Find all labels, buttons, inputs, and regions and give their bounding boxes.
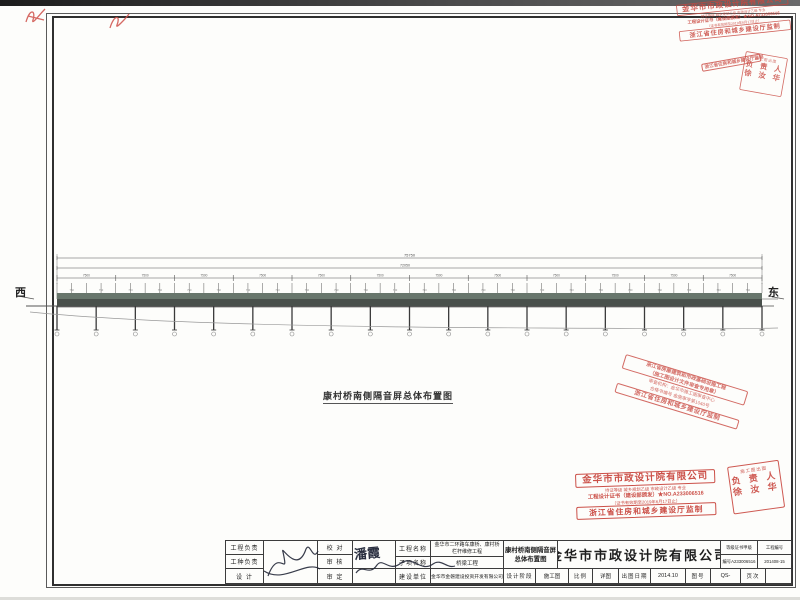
scale-label: 比例 <box>569 569 593 584</box>
drawing-title-line1: 康村桥南侧隔音屏 <box>505 547 556 554</box>
drawing-title-cell: 康村桥南侧隔音屏 总体布置图 <box>504 541 558 569</box>
title-block: 工程负责 工种负责 设 计 校 对 审 核 审 定 工程名称 金华市二环路车康桥… <box>225 540 792 585</box>
svg-text:750: 750 <box>687 288 692 292</box>
role-label-trade-lead: 工种负责 <box>226 555 264 569</box>
reviewer-signature: 潘霞 <box>353 542 381 563</box>
role-label-checker: 校 对 <box>318 541 353 555</box>
svg-text:7500: 7500 <box>670 274 677 278</box>
subitem-label: 子项名称 <box>396 557 431 569</box>
svg-text:75750: 75750 <box>404 253 416 258</box>
figno-label: 图号 <box>686 569 711 584</box>
owner-label: 建设单位 <box>396 569 431 584</box>
role-label-project-lead: 工程负责 <box>226 541 264 555</box>
svg-text:750: 750 <box>628 288 633 292</box>
east-label: 东 <box>768 284 779 300</box>
svg-text:750: 750 <box>393 288 398 292</box>
svg-text:7500: 7500 <box>612 274 619 278</box>
owner-value: 金华市金磐建设投资开发有限公司 <box>431 569 504 584</box>
svg-text:750: 750 <box>658 288 663 292</box>
svg-text:750: 750 <box>187 288 192 292</box>
svg-text:7500: 7500 <box>259 274 266 278</box>
svg-text:750: 750 <box>128 288 133 292</box>
stage-label: 设计阶段 <box>504 569 536 584</box>
svg-text:750: 750 <box>746 288 751 292</box>
svg-text:750: 750 <box>422 288 427 292</box>
svg-text:750: 750 <box>716 288 721 292</box>
certificate-stamp: 金华市市政设计院有限公司 持证等级 城乡规划乙级 市政设计乙级 专业 工程设计证… <box>575 469 717 520</box>
red-scribble-1 <box>26 9 45 22</box>
responsible-person-stamp-top: 施工图出图 负 责 人 徐 汝 华 <box>739 51 788 97</box>
signature-cell-approver <box>353 569 396 584</box>
svg-text:750: 750 <box>599 288 604 292</box>
subitem-value: 桥梁工程 <box>431 557 504 569</box>
role-label-designer: 设 计 <box>226 569 264 584</box>
svg-text:750: 750 <box>246 288 251 292</box>
west-label: 西 <box>15 284 26 300</box>
signature-cell-left <box>264 541 318 584</box>
project-name-value: 金华市二环路车康桥、康村桥 栏杆维修工程 <box>431 541 504 557</box>
svg-text:72050: 72050 <box>400 264 410 268</box>
figno-value: QS- <box>711 569 741 584</box>
scale-value: 详图 <box>593 569 619 584</box>
project-no-value: 201408-15 <box>758 555 791 569</box>
svg-text:750: 750 <box>275 288 280 292</box>
drawing-caption: 康村桥南侧隔音屏总体布置图 <box>238 386 538 404</box>
project-name-line2: 栏杆维修工程 <box>452 549 482 555</box>
svg-text:7500: 7500 <box>553 274 560 278</box>
date-label: 出图日期 <box>619 569 651 584</box>
project-name-label: 工程名称 <box>396 541 431 557</box>
svg-text:7500: 7500 <box>435 274 442 278</box>
svg-text:750: 750 <box>217 288 222 292</box>
svg-text:750: 750 <box>305 288 310 292</box>
svg-text:750: 750 <box>452 288 457 292</box>
red-scribble-1b <box>28 16 44 20</box>
role-label-reviewer: 审 核 <box>318 555 353 569</box>
page-label: 页次 <box>741 569 766 584</box>
stage-value: 施工图 <box>536 569 569 584</box>
svg-text:7500: 7500 <box>142 274 149 278</box>
svg-text:750: 750 <box>364 288 369 292</box>
svg-text:7500: 7500 <box>318 274 325 278</box>
svg-text:750: 750 <box>481 288 486 292</box>
svg-text:750: 750 <box>99 288 104 292</box>
drawing-caption-text: 康村桥南侧隔音屏总体布置图 <box>323 389 453 404</box>
responsible-person-stamp: 施工图出图 负 责 人 徐 汝 华 <box>727 460 785 515</box>
svg-text:7500: 7500 <box>729 274 736 278</box>
svg-text:750: 750 <box>334 288 339 292</box>
project-name-line1: 金华市二环路车康桥、康村桥 <box>434 542 499 548</box>
role-label-approver: 审 定 <box>318 569 353 584</box>
drawing-title-line2: 总体布置图 <box>515 556 547 563</box>
design-company-name: 金华市市政设计院有限公司 <box>558 541 721 569</box>
cert-grade-value: 编号A233006516 <box>721 555 758 569</box>
project-no-label: 工程编号 <box>758 541 791 555</box>
date-value: 2014.10 <box>651 569 686 584</box>
svg-text:7500: 7500 <box>494 274 501 278</box>
svg-text:7500: 7500 <box>377 274 384 278</box>
page-value <box>766 569 791 584</box>
svg-text:750: 750 <box>511 288 516 292</box>
svg-text:750: 750 <box>540 288 545 292</box>
svg-text:7500: 7500 <box>200 274 207 278</box>
svg-text:750: 750 <box>158 288 163 292</box>
svg-text:750: 750 <box>569 288 574 292</box>
svg-text:7500: 7500 <box>83 274 90 278</box>
cert-grade-label: 等级证书甲级 <box>721 541 758 555</box>
svg-text:750: 750 <box>70 288 75 292</box>
drawing-sheet: 7575072050750075007500750075007500750075… <box>0 0 800 600</box>
